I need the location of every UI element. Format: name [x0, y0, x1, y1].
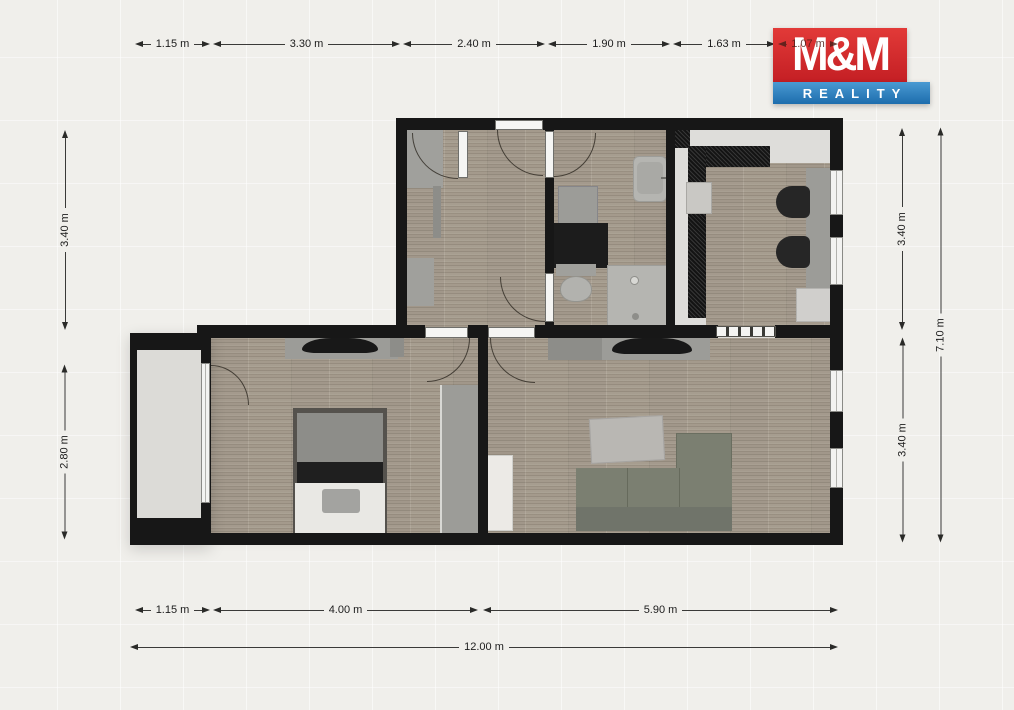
bed-mattress	[297, 413, 383, 462]
dim-top-5: 1.63 m	[673, 37, 775, 51]
kitchen-counter-corner	[674, 128, 690, 148]
wc-door	[545, 273, 554, 322]
sofa-seat	[576, 507, 732, 531]
dim-left-2: 2.80 m	[58, 365, 72, 540]
dim-top-6: 1.07 m	[778, 37, 838, 51]
dim-top-2: 3.30 m	[213, 37, 400, 51]
sofa-back-cushions	[576, 468, 732, 507]
wall-top	[396, 118, 843, 130]
hall-inner-door	[458, 131, 468, 178]
kitchen-window	[830, 237, 843, 285]
dim-right-upper: 3.40 m	[895, 128, 909, 330]
logo-blue-bar: REALITY	[773, 82, 930, 104]
wall-mid-3	[535, 325, 718, 338]
logo-name: M&M	[792, 26, 888, 84]
dim-right-total: 7.10 m	[934, 128, 948, 543]
bedroom-nightstand	[390, 338, 404, 357]
bathtub-drain-icon	[630, 276, 639, 285]
dim-top-3: 2.40 m	[403, 37, 545, 51]
kitchen-sliding-door	[716, 326, 776, 337]
kitchen-chair	[776, 236, 810, 268]
dim-top-1: 1.15 m	[135, 37, 210, 51]
floor-plan-canvas: 1.15 m 3.30 m 2.40 m 1.90 m 1.63 m 1.07 …	[0, 0, 1014, 710]
living-room-window	[830, 448, 843, 488]
living-room-door	[488, 327, 535, 338]
wall-hall-bath-3	[545, 322, 554, 333]
bed-pillow	[322, 489, 360, 513]
sink-basin	[637, 162, 663, 194]
dim-bottom-total: 12.00 m	[130, 640, 838, 654]
washing-machine	[558, 186, 598, 224]
wall-hall-bath-2	[545, 178, 554, 273]
entrance-door	[495, 120, 543, 130]
hallway-cabinet	[407, 258, 434, 306]
dim-right-lower: 3.40 m	[896, 338, 910, 543]
balcony-glass-door	[201, 363, 210, 503]
wall-bedroom-living	[478, 333, 488, 533]
kitchen-table	[806, 168, 832, 290]
dim-top-4: 1.90 m	[548, 37, 670, 51]
bathroom-door	[545, 131, 554, 178]
arrow-left-icon	[135, 41, 143, 47]
living-tv-icon	[612, 338, 692, 354]
hallway-shelf-panel	[433, 186, 441, 238]
arrow-right-icon	[202, 41, 210, 47]
kitchen-window	[830, 170, 843, 215]
kitchen-chair	[776, 186, 810, 218]
kitchen-counter-left	[688, 146, 706, 318]
balcony-floor	[137, 350, 201, 518]
bedroom-door	[425, 327, 468, 338]
bathtub-faucet-icon	[632, 313, 639, 320]
dim-bottom-3: 5.90 m	[483, 603, 838, 617]
bedroom-wardrobe	[440, 385, 478, 533]
utility-shaft	[546, 223, 608, 268]
wall-mid-4	[775, 325, 830, 338]
kitchen-stove	[686, 182, 712, 214]
coffee-table	[589, 415, 665, 464]
toilet-bowl	[560, 276, 592, 302]
dim-left-1: 3.40 m	[58, 130, 72, 330]
bed-runner	[297, 462, 383, 483]
toilet-tank	[556, 264, 596, 276]
bedroom-tv-icon	[302, 338, 378, 353]
wall-bottom	[130, 533, 843, 545]
wall-bath-kitchen	[666, 126, 675, 333]
living-room-window	[830, 370, 843, 412]
logo-tagline: REALITY	[796, 86, 908, 101]
dim-bottom-1: 1.15 m	[135, 603, 210, 617]
dim-bottom-2: 4.00 m	[213, 603, 478, 617]
wall-left-upper	[396, 118, 407, 333]
wall-mid-1	[197, 325, 425, 338]
bathtub	[607, 265, 667, 331]
